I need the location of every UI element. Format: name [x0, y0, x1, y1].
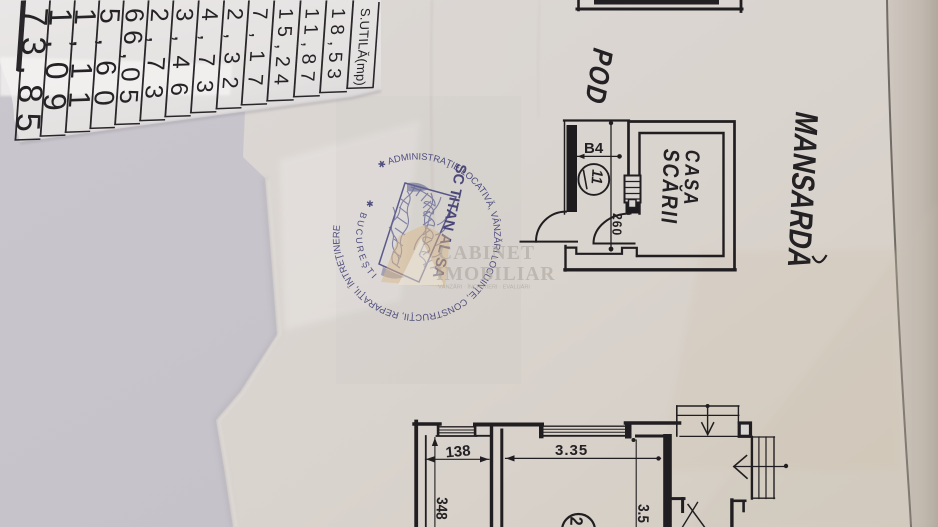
svg-text:3.35: 3.35 — [555, 442, 588, 459]
svg-text:SCĂRII: SCĂRII — [656, 147, 683, 227]
svg-text:2: 2 — [566, 516, 586, 526]
svg-text:CABINET: CABINET — [438, 243, 535, 264]
svg-text:VÂNZĂRI · ÎNCHIRIERI · EVALUĂR: VÂNZĂRI · ÎNCHIRIERI · EVALUĂRI — [438, 284, 530, 291]
svg-text:348: 348 — [432, 497, 450, 520]
svg-text:CASA: CASA — [680, 148, 704, 208]
svg-text:B4: B4 — [584, 140, 604, 157]
svg-text:138: 138 — [445, 442, 471, 461]
svg-text:3.5: 3.5 — [634, 504, 652, 523]
svg-text:IMOBILIAR: IMOBILIAR — [436, 264, 556, 285]
